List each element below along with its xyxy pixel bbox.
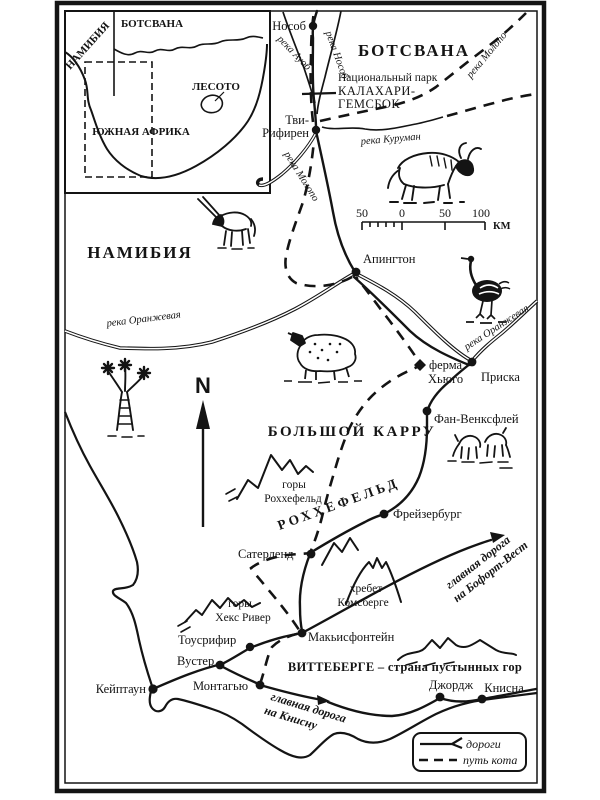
label-town-george: Джордж xyxy=(429,678,474,692)
dot-cape-town xyxy=(148,684,157,693)
dot-montagu xyxy=(256,681,265,690)
label-park-line1: Национальный парк xyxy=(338,72,438,84)
scale-50-mid: 50 xyxy=(439,206,451,220)
label-hexriver-1: горы xyxy=(228,598,252,610)
label-town-montagu: Монтагью xyxy=(193,679,248,693)
scale-0: 0 xyxy=(399,206,405,220)
label-region-witteberge: ВИТТЕБЕРГЕ – страна пустынных гор xyxy=(288,660,522,674)
dot-knysna xyxy=(478,695,487,704)
inset-label-lesotho: ЛЕСОТО xyxy=(192,81,240,93)
label-komsberge-2: Комсберге xyxy=(337,597,388,609)
inset-map: НАМИБИЯ БОТСВАНА ЛЕСОТО ЮЖНАЯ АФРИКА xyxy=(63,11,270,193)
label-town-matjiesfontein: Макьисфонтейн xyxy=(308,630,395,644)
label-town-sutherland: Сатерленд xyxy=(238,547,294,561)
north-letter: N xyxy=(195,373,211,398)
label-park-line2: КАЛАХАРИ- xyxy=(338,84,416,98)
label-region-botswana: БОТСВАНА xyxy=(358,41,470,60)
dot-george xyxy=(436,693,445,702)
map-canvas: НАМИБИЯ БОТСВАНА ЛЕСОТО ЮЖНАЯ АФРИКА xyxy=(0,0,600,800)
label-town-prieska: Приска xyxy=(481,370,520,384)
label-hugo-farm-2: Хьюго xyxy=(428,372,463,386)
legend: дороги путь кота xyxy=(413,733,526,771)
scale-unit: КМ xyxy=(493,221,511,232)
dot-touws-river xyxy=(246,643,254,651)
label-town-nosob: Нособ xyxy=(272,19,306,33)
label-komsberge-1: хребет xyxy=(350,583,382,595)
legend-roads-label: дороги xyxy=(466,737,501,751)
dot-sutherland xyxy=(307,550,316,559)
label-town-touws-river: Тоусрифир xyxy=(178,633,236,647)
label-region-namibia: НАМИБИЯ xyxy=(87,243,193,262)
label-town-twee-2: Рифирен xyxy=(262,126,309,140)
scale-50-left: 50 xyxy=(356,206,368,220)
dot-worcester xyxy=(216,661,225,670)
label-town-fraserburg: Фрейзербург xyxy=(393,507,462,521)
label-park-line3: ГЕМСБОК xyxy=(338,97,400,111)
inset-label-botswana: БОТСВАНА xyxy=(121,18,183,30)
dot-prieska xyxy=(468,358,477,367)
dot-twee-rivieren xyxy=(312,126,320,134)
label-roggeveld-mts-1: горы xyxy=(282,479,306,491)
label-town-worcester: Вустер xyxy=(177,654,214,668)
dot-matjiesfontein xyxy=(298,629,307,638)
dot-fraserburg xyxy=(380,510,389,519)
label-town-cape-town: Кейптаун xyxy=(96,682,147,696)
dot-nosob xyxy=(309,22,317,30)
legend-catpath-label: путь кота xyxy=(463,753,517,767)
inset-label-south-africa: ЮЖНАЯ АФРИКА xyxy=(92,126,190,138)
label-hexriver-2: Хекс Ривер xyxy=(215,612,271,624)
label-town-upington: Апингтон xyxy=(363,252,416,266)
book-map-page: НАМИБИЯ БОТСВАНА ЛЕСОТО ЮЖНАЯ АФРИКА xyxy=(0,0,600,800)
dot-upington xyxy=(352,268,361,277)
label-town-knysna: Книсна xyxy=(484,681,524,695)
park-boundary-tick xyxy=(302,93,336,94)
label-town-vanwyksvlei: Фан-Венксфлей xyxy=(434,412,519,426)
scale-100: 100 xyxy=(472,206,490,220)
dot-vanwyksvlei xyxy=(423,407,432,416)
label-hugo-farm-1: ферма xyxy=(429,358,463,372)
label-region-great-karoo: БОЛЬШОЙ КАРРУ xyxy=(268,423,437,440)
label-town-twee-1: Тви- xyxy=(285,113,309,127)
label-roggeveld-mts-2: Роххефельд xyxy=(264,493,322,505)
